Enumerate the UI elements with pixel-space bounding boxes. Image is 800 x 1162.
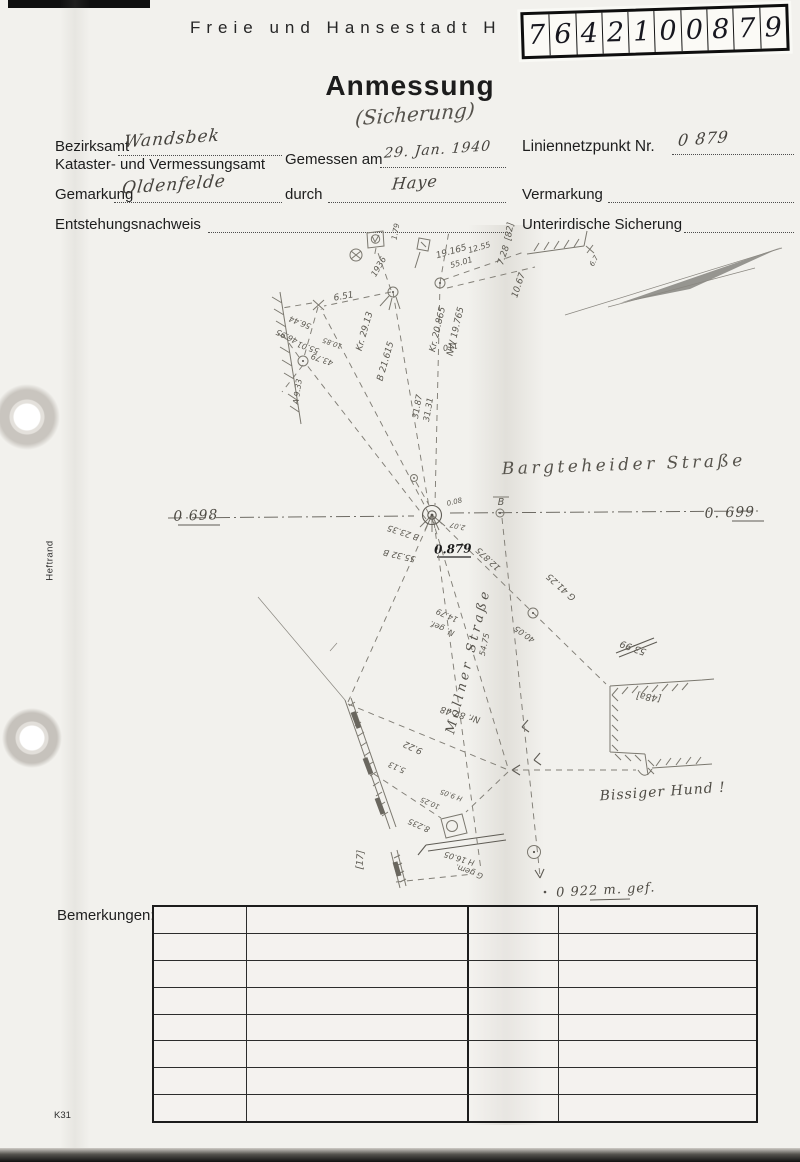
remarks-cell [469,961,559,987]
sketch-label: H 16.05 [443,849,476,867]
remarks-cell [559,1095,756,1121]
sketch-label: 10.25 [419,795,441,811]
remarks-cell [247,1041,469,1067]
sketch-label: G gem. [454,862,484,880]
sketch-label: Kr. 29.13 [355,310,376,352]
sticker-digit: 9 [760,7,787,49]
remarks-row [154,1041,756,1068]
sketch-label: 55.32 B [382,546,416,563]
sketch-label: 110 [442,341,459,353]
sketch-annotations: [82]7.2810.6719.16555.0112.5519361.796.7… [173,221,755,900]
sketch-solid-lines [178,231,782,900]
sketch-label: 0.08 [446,496,464,508]
kataster-label: Kataster- und Vermessungsamt [55,156,265,173]
sketch-label: 55.01 [296,339,321,355]
sticker-digit: 2 [602,12,630,54]
remarks-cell [154,1015,247,1041]
entstehungsnachweis-field [208,217,510,233]
unterirdische-sicherung-label: Unterirdische Sicherung [522,216,682,233]
sketch-label: [17] [354,849,366,870]
sketch-label: 31.87 [411,393,425,419]
heftrand-margin-label: Heftrand [45,540,56,580]
punch-hole-top [0,382,62,452]
remarks-cell [247,907,469,933]
sticker-digit: 0 [655,10,683,52]
remarks-cell [154,907,247,933]
sketch-label: 0 922 m. gef. [556,880,656,900]
remarks-row [154,1095,756,1121]
sketch-label: 7.28 [496,244,512,266]
remarks-cell [154,1068,247,1094]
remarks-cell [559,988,756,1014]
document-number-sticker: 7642100879 [520,4,789,59]
remarks-cell [469,907,559,933]
form-code: K31 [54,1110,71,1121]
liniennetzpunkt-value: 0 879 [677,127,730,150]
sketch-label: [48a] [635,689,662,703]
sketch-label: Kr. 20.865 [428,306,448,353]
sticker-digit: 1 [629,11,657,53]
sticker-digit: 7 [523,14,551,56]
remarks-cell [559,1068,756,1094]
scanned-form-page: Freie und Hansestadt H 7642100879 Anmess… [0,0,800,1162]
vermarkung-field [608,187,794,203]
punch-hole-bottom [1,707,63,769]
remarks-cell [469,1068,559,1094]
sketch-label: 1936 [370,255,390,279]
sketch-label: 46.95 [275,327,300,345]
sketch-label: B 23.35 [386,522,420,542]
durch-value-signature: Haye [391,171,439,193]
liniennetzpunkt-label: Liniennetzpunkt Nr. [522,138,655,156]
sketch-label: 5.13 [387,760,407,775]
remarks-cell [247,934,469,960]
durch-label: durch [285,186,323,203]
sketch-label: 19.165 [435,243,468,261]
scan-edge-artifact-top [8,0,150,8]
remarks-cell [469,988,559,1014]
remarks-cell [469,1095,559,1121]
remarks-row [154,907,756,934]
sketch-label: 0 698 [173,507,219,525]
sketch-label: 31.31 [422,397,436,423]
remarks-row [154,934,756,961]
sketch-label: 10.67 [510,271,528,299]
remarks-row [154,1015,756,1042]
sketch-label: B 21.615 [376,340,397,382]
remarks-cell [247,1095,469,1121]
sketch-label: H 9.05 [439,787,464,803]
sketch-label: 55.01 [449,255,473,270]
sketch-label: G 41.25 [545,571,578,602]
remarks-cell [559,907,756,933]
sketch-label: 0. 699 [704,504,755,522]
sketch-label: B [498,497,505,508]
bemerkungen-table [152,905,758,1123]
sketch-label: Nr. 87.48 [439,703,482,724]
sketch-label: 8.235 [407,817,432,835]
sticker-digit: 8 [707,9,735,51]
remarks-cell [247,988,469,1014]
sketch-label: 2.07 [449,520,466,531]
unterirdische-sicherung-field [684,217,794,233]
sketch-label: Möllner Straße [443,587,494,737]
remarks-cell [247,961,469,987]
remarks-cell [154,961,247,987]
sketch-label: 10.85 [321,336,343,351]
sketch-label: 0.879 [434,541,473,556]
sketch-label: 53.99 [618,638,647,658]
sketch-label: A 9.33 [291,378,304,406]
sketch-label: N. gef. [428,619,456,638]
remarks-row [154,1068,756,1095]
sketch-label: 9.22 [402,738,425,755]
remarks-cell [559,934,756,960]
sketch-label: Bissiger Hund ! [598,780,726,805]
remarks-cell [469,934,559,960]
sticker-digit: 7 [734,8,762,50]
sketch-label: 54.75 [478,632,492,656]
sketch-label: Bargteheider Straße [500,451,746,480]
sketch-label: NW 19.765 [446,306,467,357]
remarks-cell [247,1015,469,1041]
entstehungsnachweis-label: Entstehungsnachweis [55,216,201,233]
remarks-cell [469,1041,559,1067]
sketch-label: 43.79 [310,351,335,367]
remarks-cell [154,934,247,960]
remarks-row [154,961,756,988]
remarks-cell [247,1068,469,1094]
remarks-cell [154,1041,247,1067]
bemerkungen-label: Bemerkungen: [57,907,155,924]
remarks-cell [469,1015,559,1041]
remarks-cell [154,1095,247,1121]
sketch-label: 12.875 [474,545,503,573]
sticker-digit: 6 [550,13,578,55]
sketch-label: 6.51 [333,290,354,303]
agency-title: Freie und Hansestadt H [190,18,502,38]
sketch-label: 56.44 [288,314,313,331]
scan-edge-artifact-bottom [0,1148,800,1162]
vermarkung-label: Vermarkung [522,186,603,203]
remarks-cell [559,1041,756,1067]
gemessen-am-label: Gemessen am [285,151,383,168]
remarks-cell [559,961,756,987]
sticker-digit: 0 [681,9,709,51]
sketch-label: 40.05 [513,624,537,645]
sketch-label: 6.7 [588,254,601,268]
remarks-row [154,988,756,1015]
sketch-label: 12.55 [467,240,491,255]
remarks-cell [559,1015,756,1041]
sticker-digit: 4 [576,13,604,55]
sketch-label: 14.79 [435,607,460,625]
sketch-dashed-lines [168,231,758,882]
sketch-survey-points [298,231,546,893]
remarks-cell [154,988,247,1014]
